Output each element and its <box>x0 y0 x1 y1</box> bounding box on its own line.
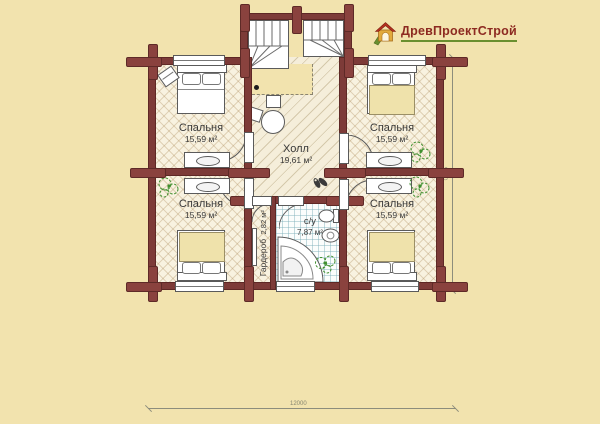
plant-icon <box>156 174 183 201</box>
room-name: Холл <box>256 143 336 156</box>
window <box>276 281 315 292</box>
room-label-bedroom-br: Спальня 15,59 м² <box>351 198 433 220</box>
tv-stand <box>366 178 412 194</box>
log-post <box>240 4 250 32</box>
bed-bedroom-tr <box>367 64 415 114</box>
logo: ДревПроектСтрой <box>372 20 517 46</box>
log-post <box>228 168 270 178</box>
hall-chair <box>266 95 281 108</box>
room-name: Спальня <box>351 122 433 135</box>
room-area: 7,87 м² <box>284 228 336 237</box>
dimension-label-bottom: 12000 <box>290 401 307 407</box>
log-post <box>292 6 302 34</box>
room-name: с/у <box>284 217 336 228</box>
log-post <box>324 168 366 178</box>
room-name: Спальня <box>351 198 433 211</box>
log-post <box>130 168 166 178</box>
plant-icon <box>313 251 339 277</box>
log-post <box>126 57 162 67</box>
door-leaf <box>339 179 349 210</box>
stair-pole-marker <box>254 85 259 90</box>
log-post <box>339 266 349 302</box>
room-label-wardrobe: Гардероб 2,82 м² <box>253 203 271 283</box>
room-name: Гардероб <box>258 239 268 276</box>
room-label-bedroom-tl: Спальня 15,59 м² <box>160 122 242 144</box>
log-post <box>432 282 468 292</box>
tv-stand <box>366 152 412 168</box>
log-post <box>240 48 250 78</box>
dimension-line-bottom <box>148 408 456 409</box>
room-area: 19,61 м² <box>256 156 336 166</box>
door-leaf <box>278 196 304 206</box>
door-leaf <box>244 132 254 163</box>
window <box>173 55 225 66</box>
room-area: 15,59 м² <box>160 211 242 221</box>
log-post <box>344 48 354 78</box>
logo-house-icon <box>372 20 397 46</box>
floor-plan-canvas: Спальня 15,59 м² Спальня 15,59 м² Спальн… <box>0 0 600 424</box>
door-leaf <box>339 133 349 164</box>
window <box>368 55 426 66</box>
window <box>371 281 419 292</box>
logo-text: ДревПроектСтрой <box>401 24 517 42</box>
hall-table <box>261 110 285 134</box>
bed-bedroom-bl <box>177 230 225 281</box>
tv-stand <box>184 152 230 168</box>
room-area: 15,59 м² <box>160 135 242 145</box>
log-post <box>344 4 354 32</box>
bed-bedroom-br <box>367 230 415 281</box>
bed-bedroom-tl <box>177 64 225 114</box>
room-label-bedroom-bl: Спальня 15,59 м² <box>160 198 242 220</box>
tv-stand <box>184 178 230 194</box>
log-post <box>432 57 468 67</box>
window <box>175 281 224 292</box>
plant-icon <box>407 174 434 201</box>
room-label-bathroom: с/у 7,87 м² <box>284 217 336 237</box>
room-label-hall: Холл 19,61 м² <box>256 143 336 165</box>
room-area: 15,59 м² <box>351 211 433 221</box>
room-name: Спальня <box>160 198 242 211</box>
room-label-bedroom-tr: Спальня 15,59 м² <box>351 122 433 144</box>
room-name: Спальня <box>160 122 242 135</box>
room-area: 2,82 м² <box>259 210 268 234</box>
log-post <box>126 282 162 292</box>
room-area: 15,59 м² <box>351 135 433 145</box>
log-post <box>428 168 464 178</box>
